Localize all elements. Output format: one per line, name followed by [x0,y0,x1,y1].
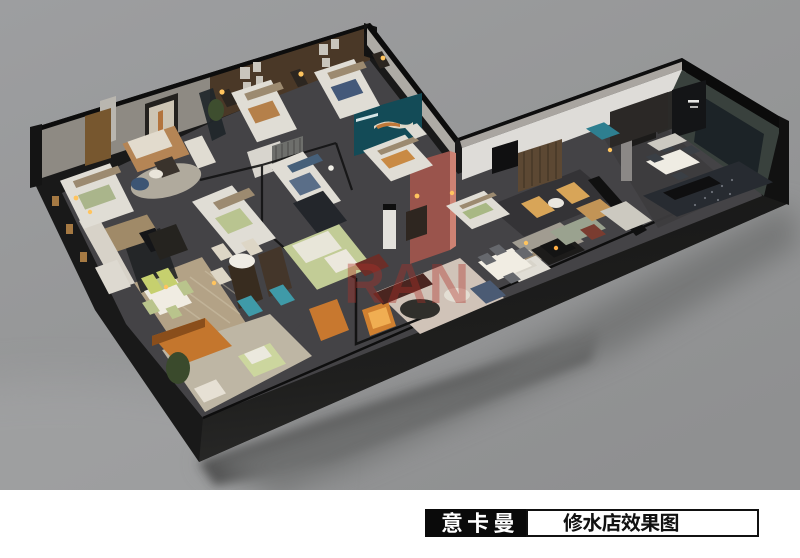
svg-text:RAN: RAN [344,252,471,316]
